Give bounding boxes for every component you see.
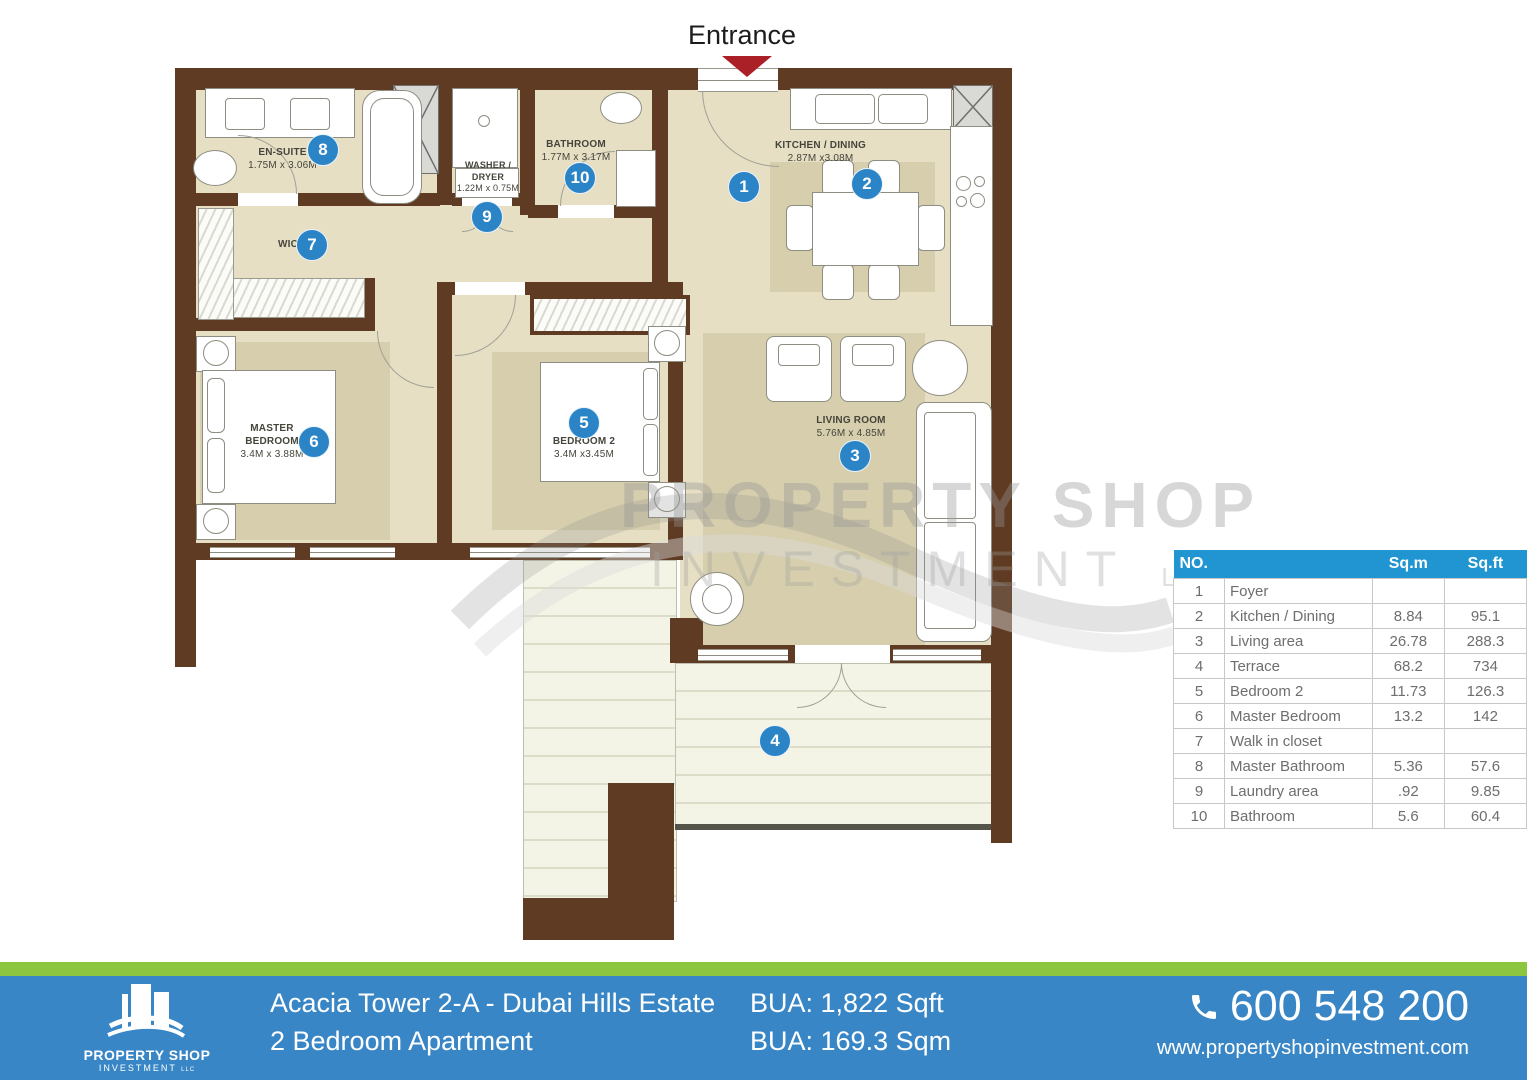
logo-llc: LLC xyxy=(181,1067,195,1073)
row-name: Laundry area xyxy=(1224,779,1372,804)
kitchen-counter-right xyxy=(950,126,993,326)
dining-chair xyxy=(822,264,854,300)
row-no: 2 xyxy=(1174,604,1225,629)
master-window xyxy=(310,547,395,558)
wall-top xyxy=(175,68,1010,90)
property-title-line2: 2 Bedroom Apartment xyxy=(270,1022,715,1060)
row-sqm: 5.36 xyxy=(1372,754,1444,779)
phone-block: 600 548 200 xyxy=(1188,982,1469,1031)
row-sqft: 142 xyxy=(1444,704,1526,729)
table-row: 7Walk in closet xyxy=(1174,729,1527,754)
marker-8: 8 xyxy=(307,134,339,166)
kitchen-sink xyxy=(815,94,875,124)
table-row: 6Master Bedroom13.2142 xyxy=(1174,704,1527,729)
buildings-icon xyxy=(82,982,212,1040)
room-dims: 2.87M x3.08M xyxy=(758,152,883,165)
entrance-arrow-icon xyxy=(722,56,772,77)
row-sqft: 9.85 xyxy=(1444,779,1526,804)
marker-10: 10 xyxy=(564,162,596,194)
row-sqm: 13.2 xyxy=(1372,704,1444,729)
terrace-edge xyxy=(675,824,993,830)
row-sqft: 95.1 xyxy=(1444,604,1526,629)
row-name: Bedroom 2 xyxy=(1224,679,1372,704)
header-sqm: Sq.m xyxy=(1372,550,1444,579)
row-no: 6 xyxy=(1174,704,1225,729)
entrance-label: Entrance xyxy=(662,20,822,51)
row-sqft xyxy=(1444,579,1526,604)
row-no: 4 xyxy=(1174,654,1225,679)
watermark-line1: PROPERTY SHOP xyxy=(620,468,1180,542)
ensuite-door-gap xyxy=(238,193,298,206)
row-sqm xyxy=(1372,729,1444,754)
nightstand-lamp xyxy=(203,508,229,534)
kitchen-sink xyxy=(878,94,928,124)
room-name: DRYER xyxy=(447,172,529,184)
dining-chair xyxy=(822,160,854,196)
ensuite-sink xyxy=(290,98,330,130)
logo-text: PROPERTY SHOP xyxy=(82,1047,212,1063)
row-sqft: 734 xyxy=(1444,654,1526,679)
marker-7: 7 xyxy=(296,229,328,261)
row-sqft: 288.3 xyxy=(1444,629,1526,654)
room-label-kitchen: KITCHEN / DINING 2.87M x3.08M xyxy=(758,139,883,165)
shower-drain xyxy=(478,115,490,127)
row-no: 1 xyxy=(1174,579,1225,604)
table-row: 5Bedroom 211.73126.3 xyxy=(1174,679,1527,704)
row-sqft: 126.3 xyxy=(1444,679,1526,704)
row-name: Bathroom xyxy=(1224,804,1372,829)
row-sqm: 68.2 xyxy=(1372,654,1444,679)
master-window xyxy=(210,547,295,558)
row-no: 7 xyxy=(1174,729,1225,754)
bath-door-gap xyxy=(558,205,614,218)
row-name: Walk in closet xyxy=(1224,729,1372,754)
room-dims: 1.22M x 0.75M xyxy=(447,183,529,195)
bed-pillow xyxy=(207,378,225,433)
bathroom-toilet xyxy=(600,92,642,124)
room-name: WASHER / xyxy=(447,160,529,172)
watermark-line2: INVESTMENT LLC xyxy=(650,540,1150,598)
terrace-wall-horizontal xyxy=(523,898,674,940)
row-no: 5 xyxy=(1174,679,1225,704)
bedroom2-door-gap xyxy=(455,282,525,295)
phone-number: 600 548 200 xyxy=(1230,982,1469,1031)
row-sqm: 5.6 xyxy=(1372,804,1444,829)
stove-burner xyxy=(974,176,985,187)
terrace-wall-vertical xyxy=(608,783,674,900)
dining-table xyxy=(812,192,919,266)
row-name: Living area xyxy=(1224,629,1372,654)
bua-info: BUA: 1,822 Sqft BUA: 169.3 Sqm xyxy=(750,984,951,1060)
shaft-box xyxy=(953,85,993,129)
row-sqft xyxy=(1444,729,1526,754)
terrace-floor xyxy=(675,663,995,830)
marker-6: 6 xyxy=(298,426,330,458)
stove-burner xyxy=(970,193,985,208)
row-name: Terrace xyxy=(1224,654,1372,679)
room-name: BATHROOM xyxy=(520,138,632,151)
armchair-cushion xyxy=(778,344,820,366)
bed-pillow xyxy=(207,438,225,493)
company-logo: PROPERTY SHOP INVESTMENT LLC xyxy=(82,982,212,1073)
property-title-line1: Acacia Tower 2-A - Dubai Hills Estate xyxy=(270,984,715,1022)
footer-green-strip xyxy=(0,962,1527,976)
marker-4: 4 xyxy=(759,725,791,757)
wic-closet xyxy=(233,278,365,318)
wall-left xyxy=(175,68,196,667)
room-name: KITCHEN / DINING xyxy=(758,139,883,152)
room-label-bathroom: BATHROOM 1.77M x 3.17M xyxy=(520,138,632,164)
wic-closet xyxy=(198,208,234,320)
table-row: 10Bathroom5.660.4 xyxy=(1174,804,1527,829)
row-sqft: 57.6 xyxy=(1444,754,1526,779)
dining-chair xyxy=(868,264,900,300)
row-sqm: 26.78 xyxy=(1372,629,1444,654)
row-no: 8 xyxy=(1174,754,1225,779)
row-sqm: 8.84 xyxy=(1372,604,1444,629)
dining-chair xyxy=(786,205,814,251)
room-label-washer: WASHER / DRYER 1.22M x 0.75M xyxy=(447,160,529,195)
nightstand-lamp xyxy=(654,330,680,356)
row-no: 9 xyxy=(1174,779,1225,804)
ensuite-sink xyxy=(225,98,265,130)
watermark-investment: INVESTMENT xyxy=(650,541,1131,597)
armchair-cushion xyxy=(852,344,894,366)
logo-subtext: INVESTMENT LLC xyxy=(82,1063,212,1073)
header-sqft: Sq.ft xyxy=(1444,550,1526,579)
row-no: 10 xyxy=(1174,804,1225,829)
table-row: 2Kitchen / Dining8.8495.1 xyxy=(1174,604,1527,629)
area-table: NO. Sq.m Sq.ft 1Foyer 2Kitchen / Dining8… xyxy=(1173,550,1527,829)
bua-sqm: BUA: 169.3 Sqm xyxy=(750,1022,951,1060)
stove-burner xyxy=(956,176,971,191)
marker-2: 2 xyxy=(851,168,883,200)
marker-9: 9 xyxy=(471,201,503,233)
table-row: 8Master Bathroom5.3657.6 xyxy=(1174,754,1527,779)
header-no: NO. xyxy=(1174,550,1373,579)
row-sqm: 11.73 xyxy=(1372,679,1444,704)
bathtub-inner xyxy=(370,98,414,196)
row-name: Foyer xyxy=(1224,579,1372,604)
logo-investment: INVESTMENT xyxy=(99,1063,177,1073)
row-no: 3 xyxy=(1174,629,1225,654)
row-name: Kitchen / Dining xyxy=(1224,604,1372,629)
bua-sqft: BUA: 1,822 Sqft xyxy=(750,984,951,1022)
row-sqft: 60.4 xyxy=(1444,804,1526,829)
dining-chair xyxy=(917,205,945,251)
nightstand-lamp xyxy=(203,340,229,366)
stove-burner xyxy=(956,196,967,207)
row-name: Master Bedroom xyxy=(1224,704,1372,729)
property-title: Acacia Tower 2-A - Dubai Hills Estate 2 … xyxy=(270,984,715,1060)
table-row: 9Laundry area.929.85 xyxy=(1174,779,1527,804)
flyer-page: EN-SUITE 1.75M x 3.06M WASHER / DRYER 1.… xyxy=(0,0,1527,1080)
phone-icon xyxy=(1188,991,1220,1023)
shower xyxy=(452,88,518,168)
marker-1: 1 xyxy=(728,171,760,203)
table-row: 1Foyer xyxy=(1174,579,1527,604)
row-sqm: .92 xyxy=(1372,779,1444,804)
table-header-row: NO. Sq.m Sq.ft xyxy=(1174,550,1527,579)
row-name: Master Bathroom xyxy=(1224,754,1372,779)
website-url: www.propertyshopinvestment.com xyxy=(1157,1036,1469,1060)
table-row: 4Terrace68.2734 xyxy=(1174,654,1527,679)
row-sqm xyxy=(1372,579,1444,604)
table-row: 3Living area26.78288.3 xyxy=(1174,629,1527,654)
